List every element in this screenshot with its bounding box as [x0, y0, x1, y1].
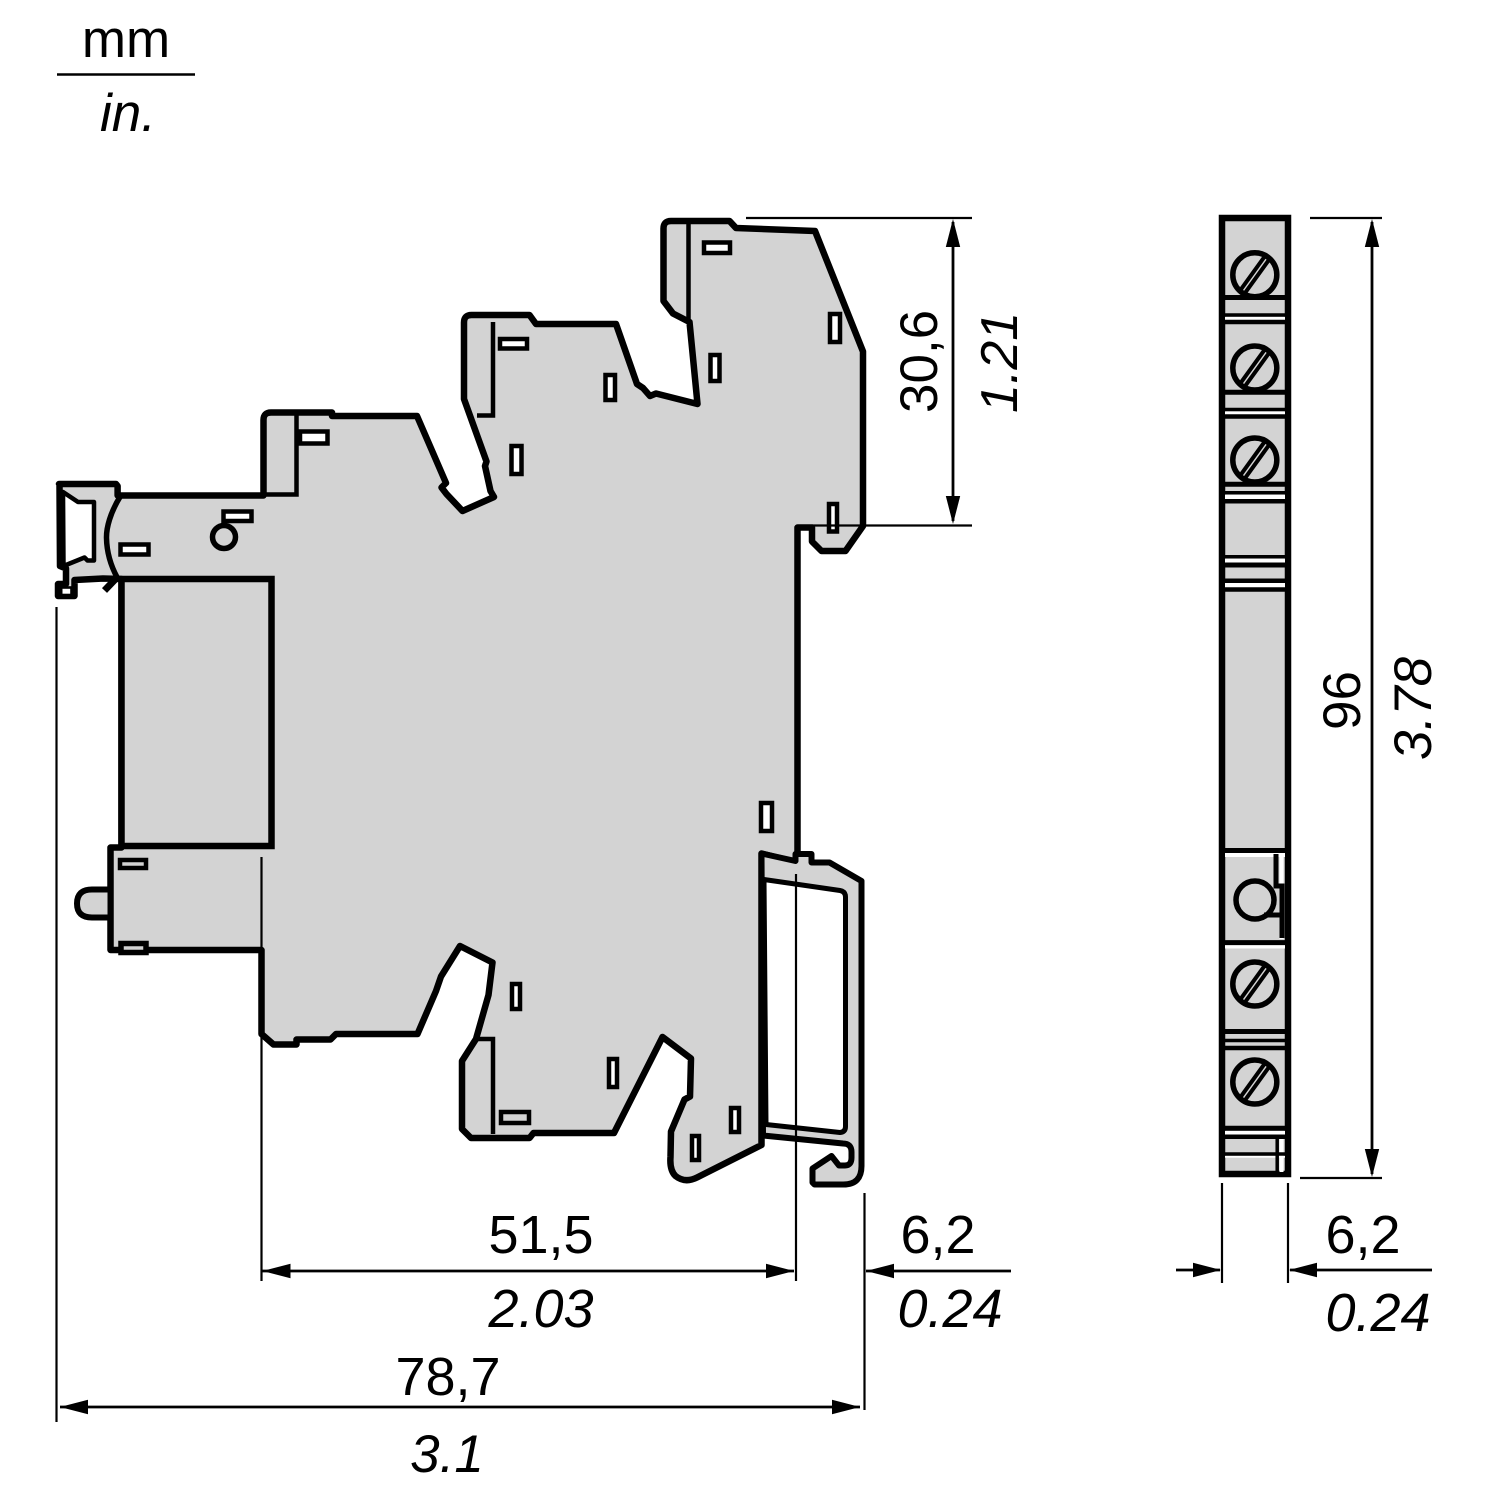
svg-text:51,5: 51,5: [488, 1205, 593, 1265]
svg-text:6,2: 6,2: [1325, 1205, 1400, 1265]
svg-text:2.03: 2.03: [487, 1279, 593, 1339]
svg-text:30,6: 30,6: [890, 310, 949, 413]
svg-text:in.: in.: [100, 84, 156, 143]
svg-text:3.78: 3.78: [1384, 656, 1443, 760]
svg-text:0.24: 0.24: [897, 1279, 1002, 1339]
svg-text:mm: mm: [82, 10, 170, 69]
svg-text:3.1: 3.1: [410, 1425, 484, 1484]
svg-text:78,7: 78,7: [395, 1347, 500, 1407]
svg-text:6,2: 6,2: [900, 1205, 975, 1265]
svg-text:1.21: 1.21: [971, 312, 1029, 413]
svg-text:0.24: 0.24: [1325, 1283, 1430, 1343]
svg-text:96: 96: [1313, 671, 1372, 730]
